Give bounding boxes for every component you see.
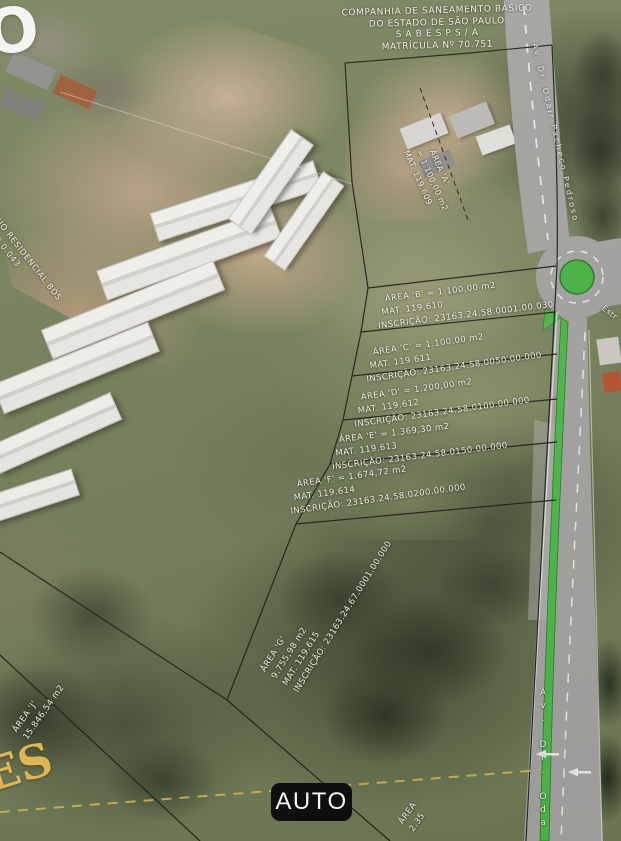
rooftop <box>53 75 98 110</box>
parcel-b-label: ÁREA 'B' = 1.100,00 m2 MAT. 119.610 INSC… <box>384 273 554 332</box>
roundabout-lane-marking <box>551 251 603 303</box>
auto-mode-badge[interactable]: AUTO <box>271 783 352 821</box>
parcel-g-label: ÁREA 'G' 9.755,98 m2 MAT. 119.615 INSCRI… <box>258 518 396 695</box>
rooftop <box>596 337 621 366</box>
street-label-avenue-top: Av. Dr. Odair Pacheco Pedroso <box>528 42 582 224</box>
street-label-fragment: Estr <box>599 302 621 323</box>
condo-building-slab <box>0 468 80 523</box>
tree-strip-right-top <box>575 30 621 250</box>
parcel-h-fragment-label: ÁREA 2.35 <box>396 800 431 835</box>
road-edge-line-right <box>589 330 602 841</box>
rooftop <box>6 52 57 91</box>
street-label-avenue-bottom: Av. Dr. Oda <box>536 688 549 831</box>
road-arrow <box>568 768 591 777</box>
rooftop <box>0 89 46 121</box>
parcel-j-label: ÁREA 'J' 15.846,54 m2 <box>10 675 68 743</box>
shed-building <box>399 113 448 150</box>
road-east-exit <box>596 238 621 308</box>
camera-viewfinder-map-photo: COMPANHIA DE SANEAMENTO BÁSICO DO ESTADO… <box>0 0 621 841</box>
rooftop <box>602 371 621 393</box>
tree-strip-right-bottom <box>592 630 621 841</box>
roundabout-center-island <box>560 260 594 294</box>
neighbor-condo-label: CONDOMÍNIO RESIDENCIAL BOS MATRÍCULA Nº … <box>0 178 64 311</box>
road-wear-patch <box>528 420 554 620</box>
shed-building <box>476 124 517 155</box>
lane-dashes-south <box>561 332 585 841</box>
utility-yellow-dashed-line <box>0 770 540 812</box>
sabesp-title-block: COMPANHIA DE SANEAMENTO BÁSICO DO ESTADO… <box>341 4 532 55</box>
